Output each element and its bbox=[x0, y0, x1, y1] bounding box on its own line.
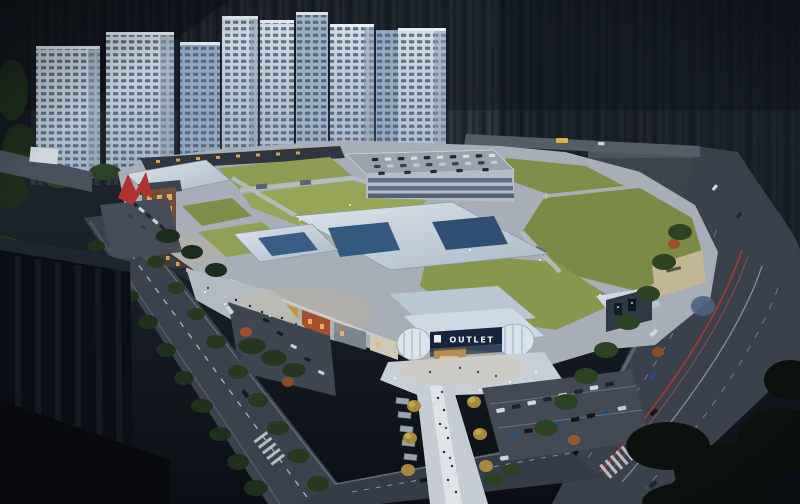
aerial-rendering: OUTLET bbox=[0, 0, 800, 504]
rendering-canvas: OUTLET bbox=[0, 0, 800, 504]
vignette bbox=[0, 0, 800, 504]
